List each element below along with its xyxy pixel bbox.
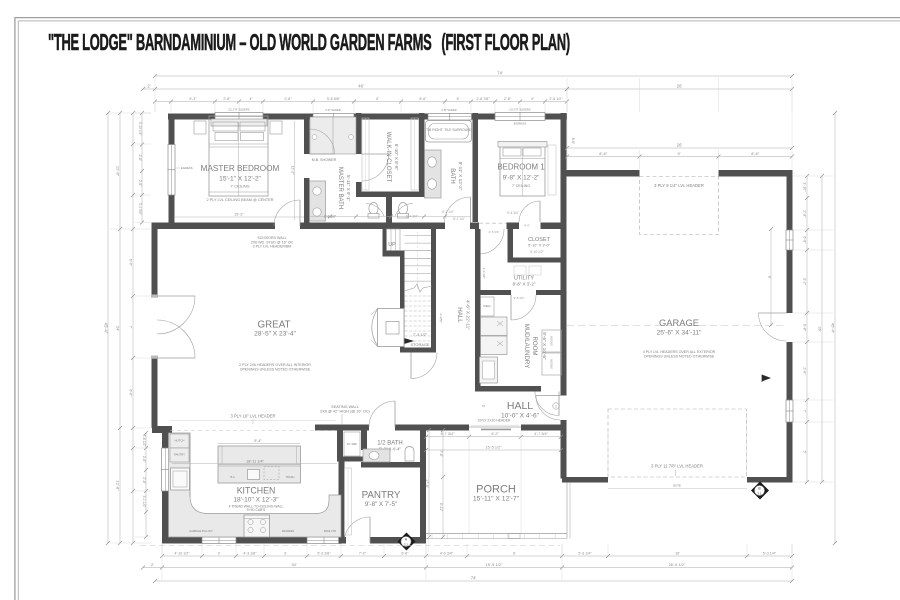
- svg-text:74': 74': [497, 70, 503, 75]
- svg-text:4'-11": 4'-11": [439, 503, 443, 512]
- svg-text:5'-3 1/4": 5'-3 1/4": [578, 551, 592, 555]
- svg-text:5': 5': [457, 97, 460, 101]
- svg-text:HALL: HALL: [456, 307, 463, 323]
- svg-text:26': 26': [677, 83, 683, 88]
- svg-text:4'-0": 4'-0": [524, 224, 530, 228]
- svg-text:3'-1 3/4": 3'-1 3/4": [138, 203, 142, 216]
- svg-text:3'-2": 3'-2": [803, 278, 807, 286]
- svg-text:25'-6" X 34'-11": 25'-6" X 34'-11": [657, 330, 702, 337]
- svg-text:SHELF: SHELF: [483, 305, 491, 308]
- svg-text:5'-3 3/8": 5'-3 3/8": [317, 551, 331, 555]
- svg-text:5': 5': [803, 451, 807, 454]
- svg-text:B.C.: B.C.: [230, 475, 235, 479]
- svg-text:9'-6" X 10'-6": 9'-6" X 10'-6": [541, 332, 547, 360]
- svg-text:7'-2": 7'-2": [359, 551, 367, 555]
- svg-text:46': 46': [358, 83, 364, 88]
- svg-text:12'-8": 12'-8": [116, 480, 121, 491]
- svg-text:4'-6" X 22'-11": 4'-6" X 22'-11": [464, 300, 470, 330]
- svg-text:3 PLY 16" LVL HEADER: 3 PLY 16" LVL HEADER: [230, 414, 275, 419]
- svg-text:5': 5': [376, 97, 379, 101]
- svg-text:4'-7 3/4": 4'-7 3/4": [441, 432, 456, 436]
- svg-text:2'-6 1/2": 2'-6 1/2": [549, 97, 563, 101]
- svg-text:5'-10 1/2": 5'-10 1/2": [530, 250, 543, 254]
- svg-text:8'-6": 8'-6": [599, 151, 608, 156]
- svg-text:2'-8": 2'-8": [803, 210, 807, 218]
- svg-text:7' CEILING: 7' CEILING: [230, 185, 249, 189]
- svg-text:45'-4": 45'-4": [831, 323, 836, 334]
- svg-text:OPENINGS UNLESS NOTED OTHERWIS: OPENINGS UNLESS NOTED OTHERWISE: [240, 368, 311, 372]
- svg-text:17'-8": 17'-8": [425, 479, 429, 488]
- svg-text:PANTRY: PANTRY: [174, 453, 185, 457]
- svg-text:HOOKS: HOOKS: [550, 359, 554, 369]
- svg-text:CLOSET: CLOSET: [528, 237, 551, 243]
- svg-text:(2) 2'-8" SLIDERS: (2) 2'-8" SLIDERS: [229, 108, 250, 112]
- svg-text:5'-10" X 3'-0": 5'-10" X 3'-0": [528, 244, 551, 248]
- svg-text:45'-4": 45'-4": [103, 323, 108, 334]
- svg-text:8'-6": 8'-6": [571, 138, 575, 144]
- svg-text:3 PLY 11 7/8" LVL HEADER: 3 PLY 11 7/8" LVL HEADER: [651, 464, 703, 469]
- svg-text:BAKE CTR: BAKE CTR: [324, 530, 336, 533]
- svg-text:30': 30': [291, 562, 296, 567]
- svg-text:6'-8": 6'-8": [803, 236, 807, 244]
- svg-text:15'-5 1/2": 15'-5 1/2": [486, 562, 503, 567]
- svg-text:3'-1(5)": 3'-1(5)": [439, 313, 443, 323]
- svg-text:9'-6 3/4": 9'-6 3/4": [514, 296, 525, 300]
- svg-text:GARAGE: GARAGE: [659, 317, 699, 328]
- svg-text:STORAGE: STORAGE: [411, 342, 430, 347]
- svg-text:WALK-IN CLOSET: WALK-IN CLOSET: [385, 132, 391, 183]
- svg-text:36': 36': [818, 326, 823, 331]
- svg-text:4 PLY LVL HEADERS OVER ALL EXT: 4 PLY LVL HEADERS OVER ALL EXTERIOR: [643, 350, 716, 354]
- svg-text:6': 6': [513, 551, 516, 555]
- svg-text:2'-8" SLIDER: 2'-8" SLIDER: [441, 108, 456, 112]
- svg-text:2 PLY LVL CEILING BEAM @ CENTE: 2 PLY LVL CEILING BEAM @ CENTER: [206, 198, 273, 202]
- svg-text:T-B RIGHT, TILE SURROUND: T-B RIGHT, TILE SURROUND: [426, 128, 472, 132]
- svg-text:8'-11" X 12'-2": 8'-11" X 12'-2": [458, 162, 463, 191]
- svg-text:3.1: 3.1: [757, 492, 762, 496]
- svg-text:8'-8" X 3'-2": 8'-8" X 3'-2": [513, 282, 536, 287]
- svg-text:HUTCH: HUTCH: [175, 439, 185, 443]
- svg-text:2X6 @ 42" HIGH (@ 16" OC): 2X6 @ 42" HIGH (@ 16" OC): [320, 410, 370, 414]
- svg-text:7'-8": 7'-8": [439, 450, 443, 458]
- svg-text:15'-1" X 12'-2": 15'-1" X 12'-2": [219, 176, 261, 183]
- svg-text:2'-8": 2'-8": [138, 180, 142, 187]
- svg-text:26': 26': [677, 142, 683, 147]
- svg-text:2'-8": 2'-8": [142, 456, 146, 463]
- svg-text:2'-8": 2'-8": [803, 367, 807, 375]
- svg-text:2'-8" SLIDER: 2'-8" SLIDER: [325, 108, 340, 112]
- svg-text:2'-6 3/4": 2'-6 3/4": [489, 230, 500, 234]
- svg-text:BATH: BATH: [449, 168, 455, 184]
- svg-text:26'-6 1/2": 26'-6 1/2": [669, 562, 686, 567]
- svg-text:3 PLY 9 1/4" LVL HEADER: 3 PLY 9 1/4" LVL HEADER: [654, 183, 704, 188]
- svg-text:15'-5 1/2": 15'-5 1/2": [485, 445, 502, 449]
- svg-text:7' CEILING: 7' CEILING: [512, 184, 530, 188]
- svg-text:9'-8" X 7'-5": 9'-8" X 7'-5": [365, 501, 397, 508]
- svg-text:1'-10": 1'-10": [803, 182, 807, 192]
- svg-text:(2) 2'-8" SLIDERS: (2) 2'-8" SLIDERS: [510, 108, 531, 112]
- svg-text:74': 74': [471, 575, 477, 580]
- svg-text:3.1: 3.1: [404, 543, 409, 547]
- svg-text:5'-3 1/4": 5'-3 1/4": [763, 551, 777, 555]
- svg-text:3': 3': [218, 551, 221, 555]
- svg-text:15'-2": 15'-2": [234, 213, 244, 217]
- svg-text:8'-2 1/4": 8'-2 1/4": [453, 217, 465, 221]
- svg-text:3'-1 1/2": 3'-1 1/2": [142, 495, 146, 508]
- svg-text:3'-3 1/2": 3'-3 1/2": [482, 268, 486, 279]
- svg-text:3 PLY LVL HEADER/BM: 3 PLY LVL HEADER/BM: [253, 245, 292, 249]
- svg-text:7': 7': [129, 326, 133, 329]
- svg-text:PANTRY: PANTRY: [362, 490, 401, 501]
- svg-text:HALL: HALL: [507, 400, 533, 412]
- svg-text:2'-6 7/8": 2'-6 7/8": [476, 97, 490, 101]
- svg-text:EGRESS: EGRESS: [514, 122, 527, 126]
- svg-text:18'-10" X 12'-3": 18'-10" X 12'-3": [233, 497, 279, 504]
- svg-text:7': 7': [803, 410, 807, 413]
- svg-text:7'-4 1/2": 7'-4 1/2": [413, 332, 428, 337]
- svg-text:1: 1: [555, 405, 557, 409]
- svg-text:24': 24': [116, 326, 121, 331]
- svg-text:12'-8": 12'-8": [116, 166, 121, 177]
- svg-text:PORCH: PORCH: [476, 484, 516, 496]
- svg-text:18'-11 1/4": 18'-11 1/4": [246, 460, 264, 464]
- svg-text:8'-6": 8'-6": [751, 151, 760, 156]
- svg-text:9': 9': [767, 276, 771, 279]
- svg-text:2': 2': [147, 83, 150, 88]
- svg-text:3'-10 1/4": 3'-10 1/4": [138, 122, 142, 137]
- svg-text:3 PLY 2X10 HEADER: 3 PLY 2X10 HEADER: [478, 419, 511, 423]
- svg-text:5'-6 5/8": 5'-6 5/8": [327, 97, 341, 101]
- svg-text:5': 5': [481, 405, 485, 408]
- svg-text:6'-6": 6'-6": [129, 389, 133, 397]
- svg-text:2'-8": 2'-8": [223, 97, 231, 101]
- svg-text:SEATING WALL: SEATING WALL: [331, 405, 359, 409]
- svg-text:15'-11" X 12'-7": 15'-11" X 12'-7": [473, 496, 520, 503]
- svg-text:2'-8": 2'-8": [138, 154, 142, 161]
- svg-text:8'-6": 8'-6": [419, 97, 427, 101]
- svg-text:3': 3': [284, 551, 287, 555]
- svg-text:5'-3": 5'-3": [189, 97, 197, 101]
- svg-text:KITCHEN: KITCHEN: [237, 486, 276, 496]
- svg-text:5'-11" X 9'-1": 5'-11" X 9'-1": [346, 175, 351, 201]
- svg-text:6'-2": 6'-2": [491, 432, 499, 436]
- svg-text:"THE LODGE" BARNDAMINIUM – OLD: "THE LODGE" BARNDAMINIUM – OLD WORLD GAR…: [48, 30, 570, 56]
- svg-text:6'-8": 6'-8": [803, 324, 807, 332]
- svg-text:MASTER BATH: MASTER BATH: [337, 167, 343, 209]
- svg-text:16': 16': [675, 551, 680, 555]
- svg-text:2 PLY 2X6 HEADERS OVER ALL INT: 2 PLY 2X6 HEADERS OVER ALL INTERIOR: [239, 363, 311, 367]
- svg-text:9'-8" X 12'-2": 9'-8" X 12'-2": [503, 175, 540, 182]
- svg-text:HOOKS: HOOKS: [550, 336, 554, 346]
- svg-text:6'-0": 6'-0": [129, 259, 133, 267]
- svg-text:6'-2 1/4": 6'-2 1/4": [442, 210, 454, 214]
- svg-text:2': 2': [151, 562, 154, 567]
- svg-text:TRASH: TRASH: [286, 475, 295, 479]
- svg-text:12'-2": 12'-2": [291, 165, 295, 175]
- svg-text:2'-8": 2'-8": [504, 97, 512, 101]
- svg-text:2'-8": 2'-8": [284, 97, 292, 101]
- svg-text:6'-6": 6'-6": [401, 551, 409, 555]
- svg-text:9'-4": 9'-4": [254, 439, 262, 443]
- svg-text:2'-8": 2'-8": [142, 477, 146, 484]
- svg-text:GREAT: GREAT: [257, 320, 290, 331]
- svg-text:4'-10 1/2": 4'-10 1/2": [174, 551, 190, 555]
- svg-text:ROOM: ROOM: [531, 337, 538, 356]
- svg-text:BEDROOM 1: BEDROOM 1: [497, 163, 544, 172]
- svg-text:4'-3 1/8": 4'-3 1/8": [243, 551, 257, 555]
- svg-text:9 HD CAB'S: 9 HD CAB'S: [247, 508, 266, 512]
- svg-text:9': 9': [678, 151, 681, 156]
- svg-text:3'-6 1/2": 3'-6 1/2": [142, 434, 146, 447]
- svg-text:9'-4 3/4": 9'-4 3/4": [507, 211, 519, 215]
- svg-text:GARBAGE PULLOUT: GARBAGE PULLOUT: [189, 530, 213, 533]
- svg-text:6'-10" X 8'-8": 6'-10" X 8'-8": [394, 144, 399, 171]
- svg-text:OPENINGS UNLESS NOTED OTHERWIS: OPENINGS UNLESS NOTED OTHERWISE: [644, 355, 715, 359]
- svg-text:4'-0 3/4": 4'-0 3/4": [440, 551, 454, 555]
- svg-text:NOTE: NOTE: [673, 484, 681, 488]
- svg-text:36" REF: 36" REF: [347, 442, 358, 446]
- svg-text:UP: UP: [388, 242, 396, 248]
- svg-text:4'-7 3/4": 4'-7 3/4": [534, 432, 549, 436]
- svg-text:M.B. SHOWER: M.B. SHOWER: [312, 158, 337, 162]
- svg-text:DRAWERS: DRAWERS: [282, 530, 295, 533]
- svg-text:28'-5" X 23'-4": 28'-5" X 23'-4": [254, 331, 296, 338]
- svg-text:EGRESS: EGRESS: [181, 166, 193, 170]
- svg-text:MUD/LAUNDRY: MUD/LAUNDRY: [523, 324, 530, 369]
